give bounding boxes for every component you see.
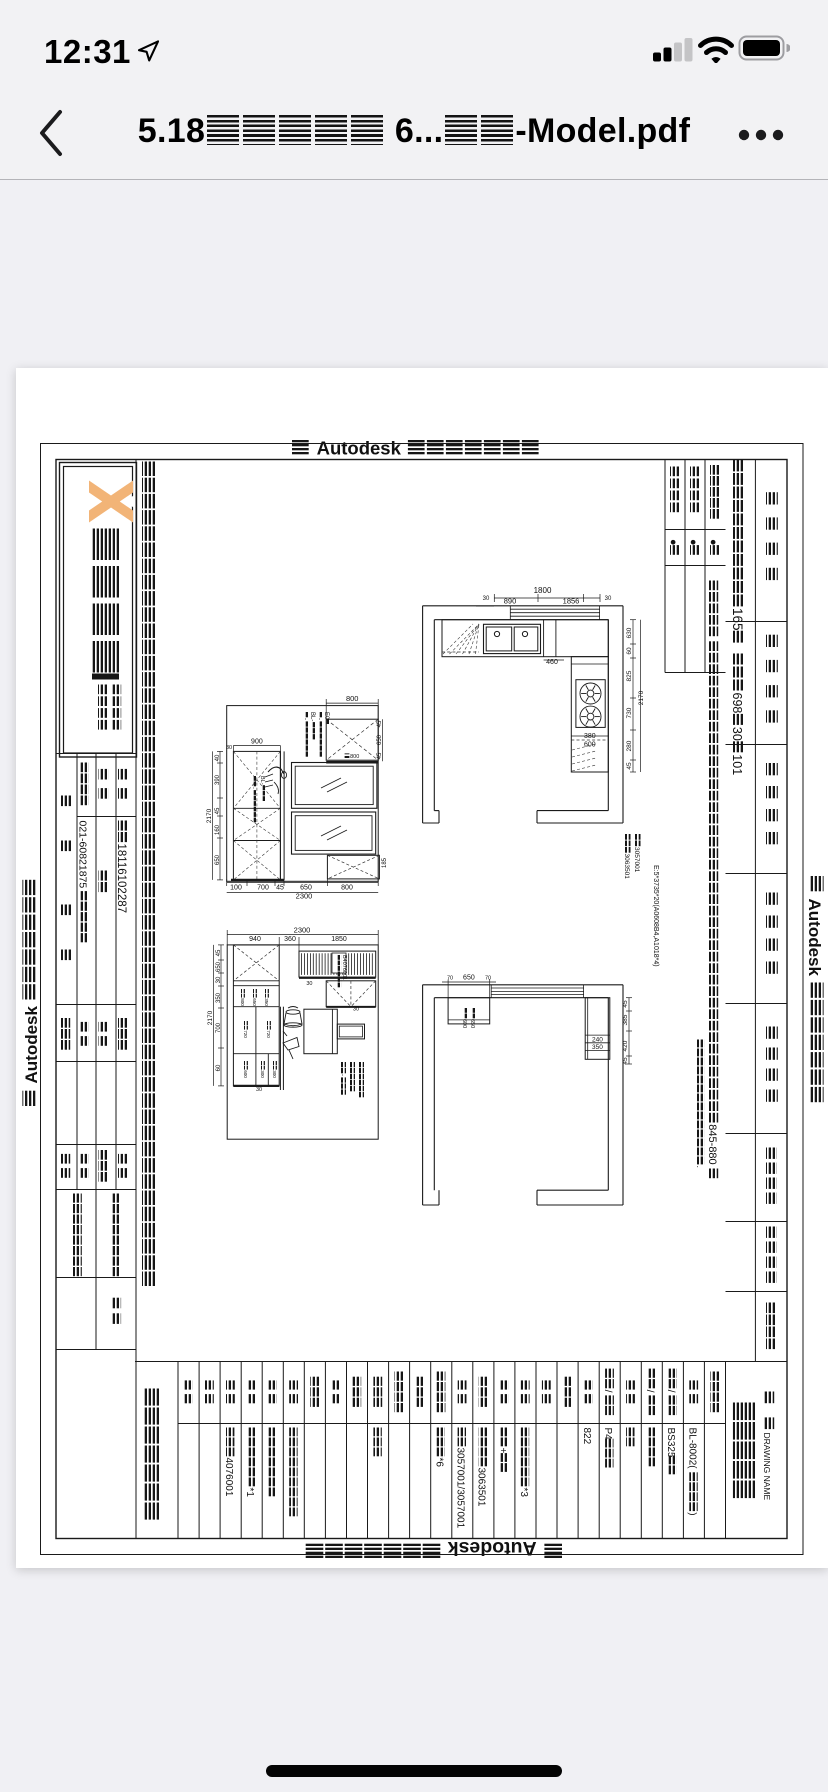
svg-text:845-880: 845-880	[706, 1124, 718, 1164]
svg-text:45: 45	[626, 762, 633, 770]
svg-text:-: -	[250, 787, 256, 789]
svg-text:BS325: BS325	[665, 1428, 676, 1458]
svg-text:165: 165	[730, 608, 745, 631]
svg-text:3057001/3057001: 3057001/3057001	[455, 1448, 466, 1529]
svg-text:BL-: BL-	[259, 776, 265, 785]
svg-text:360: 360	[284, 936, 296, 943]
svg-text:): )	[686, 1512, 697, 1515]
svg-text:1800: 1800	[534, 586, 552, 595]
svg-text:185: 185	[382, 857, 388, 868]
svg-text:900: 900	[251, 738, 263, 745]
svg-text:380: 380	[584, 733, 596, 740]
svg-text:●: ●	[687, 539, 699, 546]
svg-text:280: 280	[626, 740, 633, 751]
svg-text:720: 720	[266, 1030, 271, 1038]
svg-text:+: +	[497, 1448, 508, 1454]
svg-text:350: 350	[216, 992, 222, 1003]
svg-text:2170: 2170	[206, 808, 213, 823]
svg-text:630: 630	[626, 627, 633, 638]
svg-text:-: -	[316, 718, 322, 720]
svg-text:/: /	[665, 1390, 677, 1393]
svg-text:*3: *3	[518, 1488, 529, 1498]
svg-text:Autodesk: Autodesk	[317, 438, 402, 459]
svg-text:70: 70	[485, 976, 491, 982]
svg-text:3057001: 3057001	[633, 847, 640, 873]
svg-text:45: 45	[276, 885, 284, 892]
svg-text:800: 800	[341, 885, 353, 892]
svg-text:B4076001: B4076001	[341, 955, 347, 980]
svg-text:30: 30	[605, 596, 612, 602]
svg-text:DRAWING NAME: DRAWING NAME	[762, 1433, 772, 1501]
svg-text:3063501: 3063501	[623, 854, 630, 880]
svg-text:45: 45	[377, 752, 383, 759]
svg-text:●: ●	[707, 539, 719, 546]
svg-text:698: 698	[730, 693, 744, 714]
svg-text:2170: 2170	[207, 1010, 214, 1025]
svg-text:800: 800	[240, 998, 245, 1006]
svg-text:/: /	[644, 1390, 656, 1393]
svg-text:240: 240	[592, 1036, 603, 1043]
svg-text:822: 822	[581, 1428, 592, 1445]
svg-text:Autodesk: Autodesk	[22, 1006, 41, 1084]
svg-text:650: 650	[215, 854, 221, 865]
svg-text:BL-8002(: BL-8002(	[686, 1428, 697, 1470]
svg-text:45: 45	[216, 949, 222, 956]
svg-text:600: 600	[461, 1019, 467, 1028]
svg-text:650: 650	[300, 885, 312, 892]
svg-text:940: 940	[249, 936, 261, 943]
svg-text:-: -	[302, 718, 308, 720]
svg-text:650: 650	[469, 1019, 475, 1028]
svg-text:18116102287: 18116102287	[115, 844, 127, 914]
svg-text:P4: P4	[602, 1428, 613, 1441]
svg-text:1856: 1856	[563, 597, 580, 606]
svg-text:60: 60	[626, 647, 633, 655]
svg-text:600: 600	[243, 1070, 248, 1078]
svg-text:45: 45	[622, 1000, 629, 1008]
svg-text:1850: 1850	[331, 936, 347, 943]
svg-text:600: 600	[584, 742, 596, 749]
svg-text:300: 300	[260, 1070, 265, 1078]
svg-text:4076001: 4076001	[223, 1458, 234, 1497]
svg-text:/: /	[602, 1390, 614, 1393]
svg-text:45: 45	[622, 1057, 629, 1065]
svg-text:100: 100	[230, 885, 242, 892]
svg-text:350: 350	[592, 1044, 603, 1051]
svg-text:E:5*3735*20(A0608B4,A1018*4): E:5*3735*20(A0608B4,A1018*4)	[652, 865, 659, 967]
svg-text:800: 800	[350, 754, 359, 760]
svg-text:70: 70	[447, 976, 453, 982]
svg-text:2300: 2300	[294, 926, 311, 935]
svg-text:700: 700	[216, 1022, 222, 1033]
svg-text:890: 890	[504, 597, 517, 606]
svg-text:-: -	[339, 1074, 345, 1076]
svg-text:300: 300	[272, 1070, 277, 1078]
svg-text:●: ●	[667, 539, 679, 546]
svg-text:650: 650	[216, 961, 222, 972]
svg-text:45: 45	[377, 720, 383, 727]
svg-text:.: .	[695, 1166, 705, 1169]
svg-text:021-60821875: 021-60821875	[77, 821, 89, 889]
svg-text:800: 800	[346, 694, 359, 703]
svg-text:30: 30	[483, 596, 490, 602]
svg-text:Autodesk: Autodesk	[805, 899, 824, 977]
svg-text:101: 101	[730, 754, 744, 775]
svg-text:390: 390	[215, 774, 221, 785]
svg-text:650: 650	[377, 734, 383, 745]
svg-text:Autodesk: Autodesk	[448, 1537, 537, 1559]
svg-text:30: 30	[306, 981, 312, 987]
svg-text:30: 30	[216, 976, 222, 983]
svg-text:3063501: 3063501	[476, 1468, 487, 1507]
svg-text:350: 350	[264, 998, 269, 1006]
svg-text:30: 30	[353, 1007, 359, 1013]
svg-text:720: 720	[243, 1030, 248, 1038]
svg-text:BL-: BL-	[309, 712, 315, 721]
svg-text:*6: *6	[434, 1458, 445, 1468]
svg-text:40: 40	[215, 754, 221, 761]
svg-text:700: 700	[257, 885, 269, 892]
svg-text:30: 30	[730, 727, 744, 741]
svg-text:2170: 2170	[638, 690, 645, 705]
svg-text:30: 30	[226, 745, 232, 751]
svg-text:160: 160	[215, 824, 221, 835]
svg-text:730: 730	[626, 707, 633, 718]
svg-text:45: 45	[215, 807, 221, 814]
svg-text:60: 60	[216, 1064, 222, 1071]
svg-text:825: 825	[626, 670, 633, 681]
svg-text:650: 650	[463, 975, 475, 982]
svg-text:30: 30	[256, 1087, 262, 1093]
svg-text:2300: 2300	[296, 892, 313, 901]
svg-text:385: 385	[622, 1014, 629, 1025]
svg-text:650: 650	[252, 998, 257, 1006]
svg-text:*1: *1	[244, 1488, 255, 1498]
svg-text:420: 420	[622, 1040, 629, 1051]
